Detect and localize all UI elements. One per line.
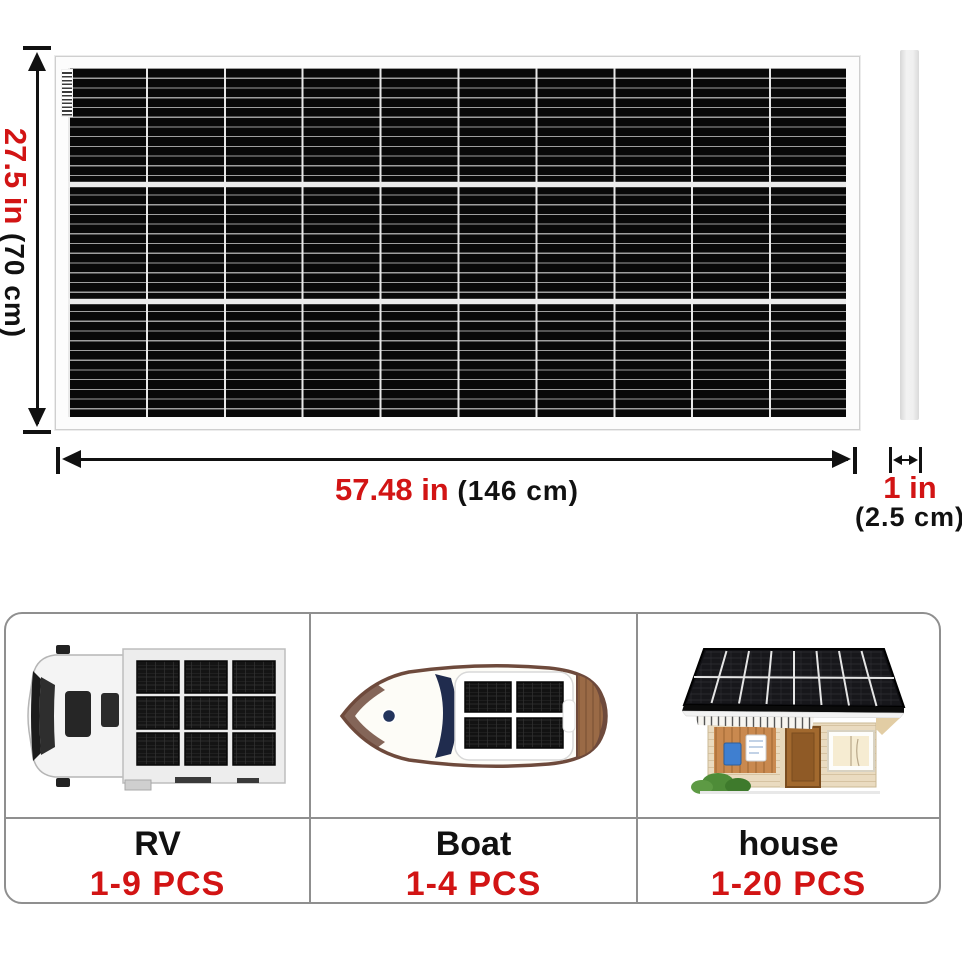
arrow-up-icon bbox=[28, 52, 46, 71]
rv-top-view-icon bbox=[25, 641, 290, 791]
dimension-end-tick bbox=[853, 447, 857, 474]
height-imperial: 27.5 in bbox=[0, 128, 33, 225]
application-name: Boat bbox=[311, 825, 636, 864]
application-quantity: 1-20 PCS bbox=[638, 864, 939, 904]
application-name: RV bbox=[6, 825, 309, 864]
rv-roof-solar-array bbox=[137, 661, 275, 765]
inverter-box bbox=[724, 743, 741, 765]
house-label-cell: house 1-20 PCS bbox=[638, 817, 939, 904]
solar-panel-dimension-diagram: 27.5 in (70 cm) 57.48 in (146 cm) 1 in (… bbox=[0, 0, 962, 962]
house-image-cell bbox=[638, 614, 939, 817]
dimension-line bbox=[66, 458, 848, 461]
width-imperial: 57.48 in bbox=[335, 472, 449, 507]
application-quantity: 1-9 PCS bbox=[6, 864, 309, 904]
dimension-line bbox=[36, 58, 39, 424]
thickness-imperial: 1 in bbox=[858, 470, 962, 506]
width-metric: (146 cm) bbox=[457, 475, 579, 506]
application-quantity: 1-4 PCS bbox=[311, 864, 636, 904]
arrow-left-icon bbox=[62, 450, 81, 468]
dimension-end-tick bbox=[23, 46, 51, 50]
boat-label-cell: Boat 1-4 PCS bbox=[311, 817, 638, 904]
bow-hatch bbox=[382, 709, 395, 722]
solar-cells-grid bbox=[68, 68, 846, 417]
stern-wood-deck bbox=[577, 674, 604, 758]
height-label: 27.5 in (70 cm) bbox=[0, 113, 33, 353]
arrow-right-icon bbox=[909, 455, 918, 465]
width-label: 57.48 in (146 cm) bbox=[60, 472, 854, 508]
arrow-left-icon bbox=[893, 455, 902, 465]
boat-top-view-icon bbox=[339, 660, 609, 772]
rv-label-cell: RV 1-9 PCS bbox=[6, 817, 311, 904]
panel-section-divider bbox=[68, 299, 846, 304]
rv-image-cell bbox=[6, 614, 311, 817]
thickness-metric: (2.5 cm) bbox=[840, 502, 962, 533]
panel-section-divider bbox=[68, 182, 846, 187]
height-metric: (70 cm) bbox=[0, 233, 30, 338]
boat-image-cell bbox=[311, 614, 638, 817]
solar-panel-front-view bbox=[55, 56, 860, 430]
house-solar-roof-icon bbox=[666, 643, 911, 803]
solar-panel-side-profile bbox=[900, 50, 919, 420]
application-name: house bbox=[638, 825, 939, 864]
dimension-end-tick bbox=[23, 430, 51, 434]
arrow-down-icon bbox=[28, 408, 46, 427]
arrow-right-icon bbox=[832, 450, 851, 468]
applications-table: RV 1-9 PCS Boat 1-4 PCS house 1-20 PCS bbox=[4, 612, 941, 904]
serial-label-sticker bbox=[61, 69, 73, 117]
dimension-end-tick bbox=[56, 447, 60, 474]
